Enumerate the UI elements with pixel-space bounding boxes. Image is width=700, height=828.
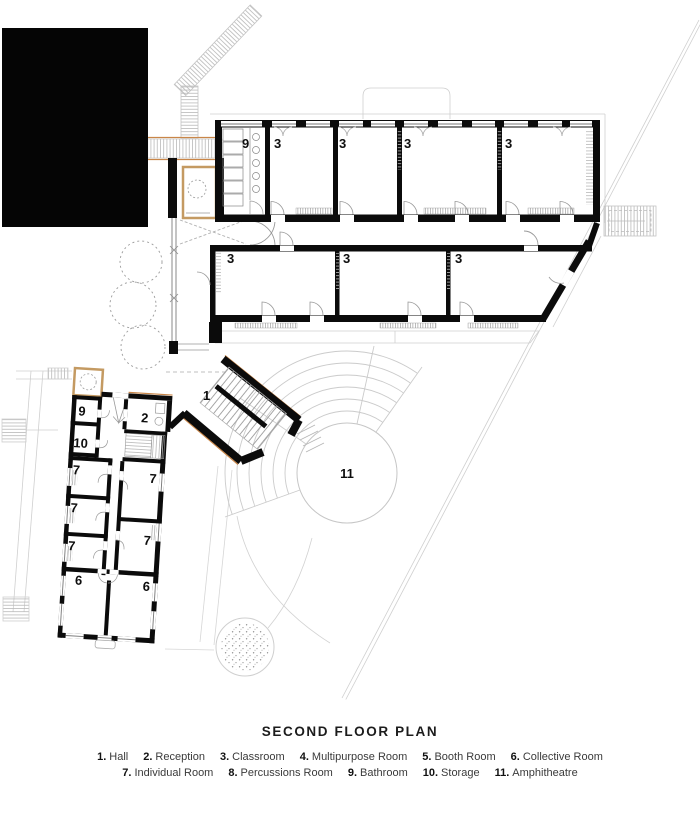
legend-item: 10.Storage (423, 765, 480, 781)
legend-item: 8.Percussions Room (228, 765, 333, 781)
room-label-classroom: 3 (505, 136, 512, 151)
ramp-ladder (181, 86, 198, 138)
room-label-individual: 7 (143, 533, 151, 548)
room-label-storage: 10 (73, 435, 88, 451)
site-steps (48, 368, 68, 379)
legend-item: 5.Booth Room (422, 749, 495, 765)
existing-building (2, 28, 148, 227)
lift-shaft (183, 167, 216, 218)
room-label-hall: 1 (203, 388, 210, 403)
room-label-reception: 2 (141, 410, 149, 425)
room-label-collective: 6 (142, 579, 150, 594)
tree-dashed (120, 241, 162, 283)
lift-shaft-2 (73, 368, 103, 397)
room-label-collective: 6 (75, 572, 83, 587)
tree-dashed (110, 282, 156, 328)
room-label-bathroom: 9 (78, 403, 86, 418)
room-label-individual: 7 (68, 538, 76, 553)
legend-item: 6.Collective Room (511, 749, 603, 765)
lower-building: 9 10 7 7 7 7 7 6 6 2 (57, 368, 174, 652)
room-label-classroom: 3 (343, 251, 350, 266)
footbridge (140, 138, 222, 160)
legend-row-1: 1.Hall 2.Reception 3.Classroom 4.Multipu… (0, 749, 700, 765)
legend-item: 4.Multipurpose Room (300, 749, 408, 765)
room-label-classroom: 3 (274, 136, 281, 151)
floor-plan-page: 9 10 7 7 7 7 7 6 6 2 9 3 3 3 3 3 3 3 1 1… (0, 0, 700, 828)
legend-item: 9.Bathroom (348, 765, 408, 781)
vent-symbols (274, 127, 571, 136)
ground-curve (268, 538, 312, 628)
legend-item: 3.Classroom (220, 749, 285, 765)
room-label-classroom: 3 (339, 136, 346, 151)
room-label-classroom: 3 (404, 136, 411, 151)
access-ramp (174, 5, 262, 138)
room-label-bathroom: 9 (242, 136, 249, 151)
caption: SECOND FLOOR PLAN 1.Hall 2.Reception 3.C… (0, 716, 700, 781)
exterior-stair-east (604, 206, 656, 236)
tree-dashed (121, 325, 165, 369)
room-label-amphitheatre: 11 (340, 466, 354, 481)
legend-item: 11.Amphitheatre (495, 765, 578, 781)
legend-row-2: 7.Individual Room 8.Percussions Room 9.B… (0, 765, 700, 781)
floor-plan-drawing: 9 10 7 7 7 7 7 6 6 2 9 3 3 3 3 3 3 3 1 1… (0, 0, 700, 716)
legend-item: 2.Reception (143, 749, 205, 765)
exterior-stair-southwest (3, 597, 29, 621)
plan-title: SECOND FLOOR PLAN (0, 724, 700, 739)
room-label-classroom: 3 (455, 251, 462, 266)
room-label-classroom: 3 (227, 251, 234, 266)
room-label-individual: 7 (72, 462, 80, 477)
room-label-individual: 7 (70, 500, 78, 515)
exterior-stair-west (2, 419, 26, 442)
middle-wing (197, 232, 592, 328)
room-label-individual: 7 (149, 471, 157, 486)
corridor-doors (180, 220, 538, 246)
hall (166, 356, 300, 465)
legend-item: 1.Hall (97, 749, 128, 765)
legend-item: 7.Individual Room (122, 765, 213, 781)
building-staircase (125, 433, 165, 458)
